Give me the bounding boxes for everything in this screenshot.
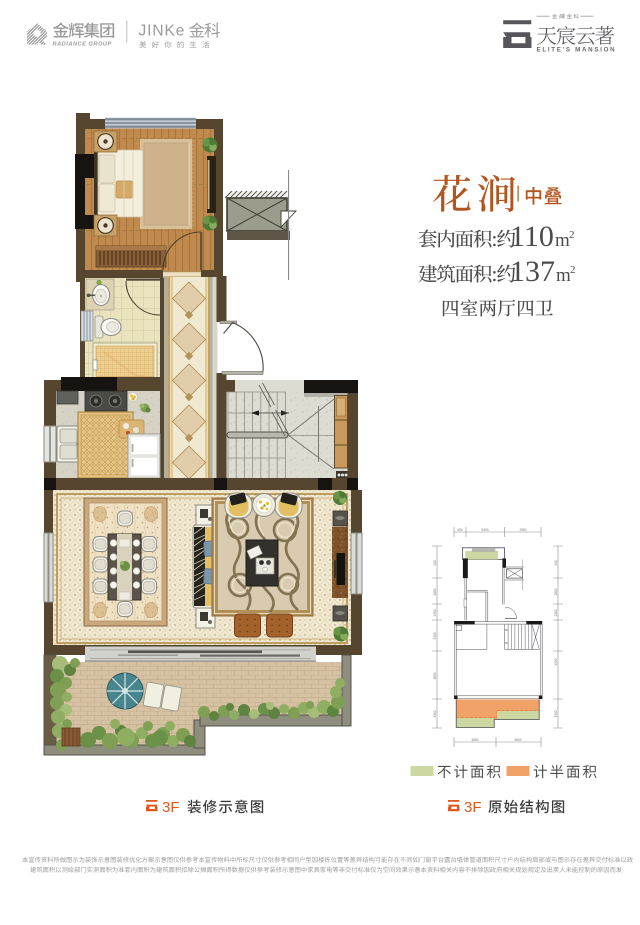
svg-text:RADIANCE GROUP: RADIANCE GROUP [53, 42, 112, 48]
svg-text:4550: 4550 [554, 658, 558, 665]
svg-text:3850: 3850 [433, 672, 437, 679]
svg-text:2800: 2800 [433, 588, 437, 595]
svg-text:2800: 2800 [554, 588, 558, 595]
svg-text:110: 110 [510, 220, 554, 253]
svg-text:3550: 3550 [471, 738, 478, 742]
svg-text:3300: 3300 [433, 632, 437, 639]
svg-text:2950: 2950 [519, 528, 526, 532]
svg-text:JINKe: JINKe [139, 23, 186, 40]
svg-text:3600: 3600 [514, 738, 521, 742]
svg-text:650: 650 [457, 528, 463, 532]
svg-text:m: m [555, 230, 570, 251]
svg-text:3F: 3F [464, 799, 482, 816]
svg-text:m: m [556, 265, 571, 286]
svg-text:3300: 3300 [554, 710, 558, 717]
svg-text:2350: 2350 [433, 609, 437, 616]
svg-text:2: 2 [569, 229, 575, 241]
svg-text:5400: 5400 [481, 528, 488, 532]
svg-text:3F: 3F [162, 799, 180, 816]
svg-text:ELITE'S MANSION: ELITE'S MANSION [537, 47, 617, 54]
svg-text:2: 2 [570, 264, 576, 276]
svg-text:2350: 2350 [554, 609, 558, 616]
svg-text:3300: 3300 [433, 710, 437, 717]
svg-text:900: 900 [554, 560, 558, 566]
svg-text:137: 137 [510, 255, 555, 288]
svg-text:900: 900 [433, 560, 437, 566]
